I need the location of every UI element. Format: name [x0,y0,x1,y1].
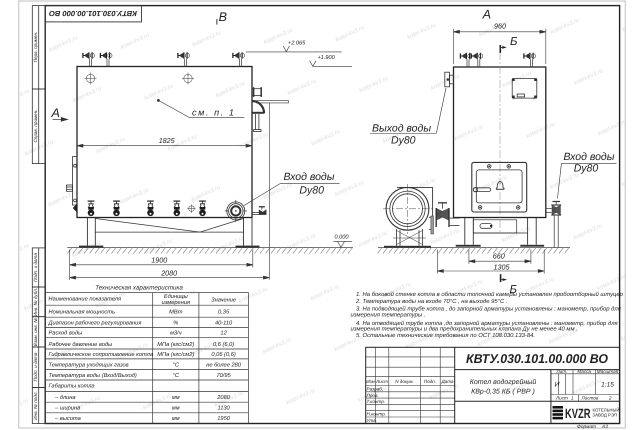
svg-text:1130: 1130 [217,405,230,411]
svg-text:5. Остальные технические треб: 5. Остальные технические требования по О… [356,332,535,339]
svg-text:А: А [51,106,60,120]
svg-text:Вход воды: Вход воды [284,171,335,183]
svg-text:Dy80: Dy80 [299,184,324,196]
svg-text:Температура уходящих газов: Температура уходящих газов [49,361,129,368]
svg-text:мм: мм [172,416,180,422]
svg-text:Выход воды: Выход воды [372,123,431,135]
svg-text:2. Температура воды на входе: 2. Температура воды на входе 70°С , на в… [355,298,508,305]
svg-text:Габариты котла: Габариты котла [49,383,95,390]
svg-text:измерения температуры и два пр: измерения температуры и два предохраните… [351,326,578,333]
svg-text:Единицы: Единицы [164,293,189,300]
svg-text:0,6 (6,0): 0,6 (6,0) [213,341,234,348]
svg-text:12: 12 [220,331,227,337]
svg-text:А: А [482,8,491,22]
svg-text:– длина: – длина [54,394,76,401]
svg-text:Утв.: Утв. [367,418,377,423]
svg-text:1:15: 1:15 [601,382,614,389]
svg-text:3. На подводящей трубе котла: 3. На подводящей трубе котла , до запорн… [356,305,622,312]
svg-text:МВт: МВт [169,310,183,316]
svg-text:2080: 2080 [216,395,230,401]
svg-text:Лит.: Лит. [556,369,568,374]
svg-text:Значение: Значение [211,297,236,303]
svg-text:м3/ч: м3/ч [170,330,182,337]
svg-text:+1.900: +1.900 [318,55,336,61]
svg-text:°С: °С [173,373,180,379]
svg-text:1: 1 [571,396,574,401]
svg-text:Формат: Формат [577,424,596,430]
svg-text:1900: 1900 [151,256,167,265]
svg-text:Изм: Изм [366,379,375,384]
svg-text:Масштаб: Масштаб [597,369,619,374]
svg-text:см. п. 1: см. п. 1 [192,108,235,118]
svg-text:Расход воды: Расход воды [49,330,83,337]
svg-text:Подп. и дата: Подп. и дата [33,253,38,282]
svg-text:0,06 (0,6): 0,06 (0,6) [211,351,235,358]
svg-text:ЗАВОД РЭП: ЗАВОД РЭП [593,413,618,418]
svg-text:1. На боковой стенке котла в: 1. На боковой стенке котла в области топ… [356,291,624,298]
svg-text:– высота: – высота [54,416,81,422]
svg-text:Б: Б [510,36,518,48]
svg-text:Наименование показателя: Наименование показателя [49,297,122,303]
svg-text:0,35: 0,35 [218,310,230,316]
svg-text:N докум.: N докум. [395,379,414,384]
svg-text:660: 660 [493,252,505,261]
svg-text:1825: 1825 [159,136,176,145]
svg-text:Разраб.: Разраб. [367,387,384,392]
svg-text:Листов: Листов [581,396,599,401]
svg-text:Н.контр.: Н.контр. [367,412,386,417]
svg-text:°С: °С [173,362,180,368]
svg-text:Перв. примен.: Перв. примен. [33,32,38,63]
svg-text:Масса: Масса [577,369,591,374]
svg-text:КВр-0,35 КБ ( РВР ): КВр-0,35 КБ ( РВР ) [471,388,535,396]
svg-text:Лист: Лист [375,379,388,384]
svg-text:2080: 2080 [160,268,177,277]
svg-text:1305: 1305 [494,262,511,271]
svg-text:Т.контр.: Т.контр. [367,399,386,404]
svg-text:Справ. примен.: Справ. примен. [33,109,38,142]
svg-text:Техническая характеристика: Техническая характеристика [95,285,183,292]
svg-text:2: 2 [608,396,612,401]
svg-text:Температура воды (Вход/Выход): Температура воды (Вход/Выход) [49,372,137,379]
svg-text:мм: мм [172,405,180,411]
svg-text:– ширина: – ширина [54,405,80,411]
svg-text:КВТУ.030.101.00.000 ВО: КВТУ.030.101.00.000 ВО [49,9,137,18]
svg-text:KVZR: KVZR [565,406,591,421]
svg-text:+2.065: +2.065 [288,41,306,47]
svg-text:МПа (кгс/см2): МПа (кгс/см2) [157,341,194,348]
svg-text:Диапазон рабочего регулировани: Диапазон рабочего регулирования [48,319,142,326]
svg-text:Котел водогрейный: Котел водогрейный [470,378,537,386]
svg-text:МПа (кгс/см2): МПа (кгс/см2) [157,351,194,358]
svg-text:Dy80: Dy80 [391,135,416,147]
svg-text:Инв. № дубл.: Инв. № дубл. [33,288,38,316]
svg-text:Номинальная мощность: Номинальная мощность [49,310,115,316]
svg-text:Гидравлическое сопротивление к: Гидравлическое сопротивление котла [49,351,154,358]
svg-text:измерения температуры .: измерения температуры . [351,312,426,318]
svg-text:Подп.: Подп. [424,379,436,384]
svg-text:Взам. инв. №: Взам. инв. № [33,318,38,346]
svg-text:70/95: 70/95 [216,372,231,379]
svg-text:мм: мм [172,395,180,401]
svg-text:КВТУ.030.101.00.000 ВО: КВТУ.030.101.00.000 ВО [466,351,608,366]
svg-text:В: В [219,10,227,24]
svg-text:960: 960 [494,22,506,31]
svg-text:1950: 1950 [217,416,230,422]
svg-text:Подп. и дата: Подп. и дата [33,352,38,381]
svg-text:Пров.: Пров. [367,393,379,398]
svg-text:А3: А3 [601,424,608,430]
svg-text:измерения: измерения [162,300,190,306]
svg-text:Инв. № подл.: Инв. № подл. [33,391,38,420]
svg-text:Дата: Дата [440,379,454,384]
svg-text:Вход воды: Вход воды [564,151,615,163]
svg-text:не более 280: не более 280 [206,361,242,368]
svg-text:0.000: 0.000 [335,234,350,240]
svg-text:Рабочее давление воды: Рабочее давление воды [49,341,114,348]
svg-text:%: % [173,320,178,326]
svg-text:Лист: Лист [555,396,568,401]
svg-text:40-110: 40-110 [215,320,233,326]
svg-text:Dy80: Dy80 [574,163,599,175]
